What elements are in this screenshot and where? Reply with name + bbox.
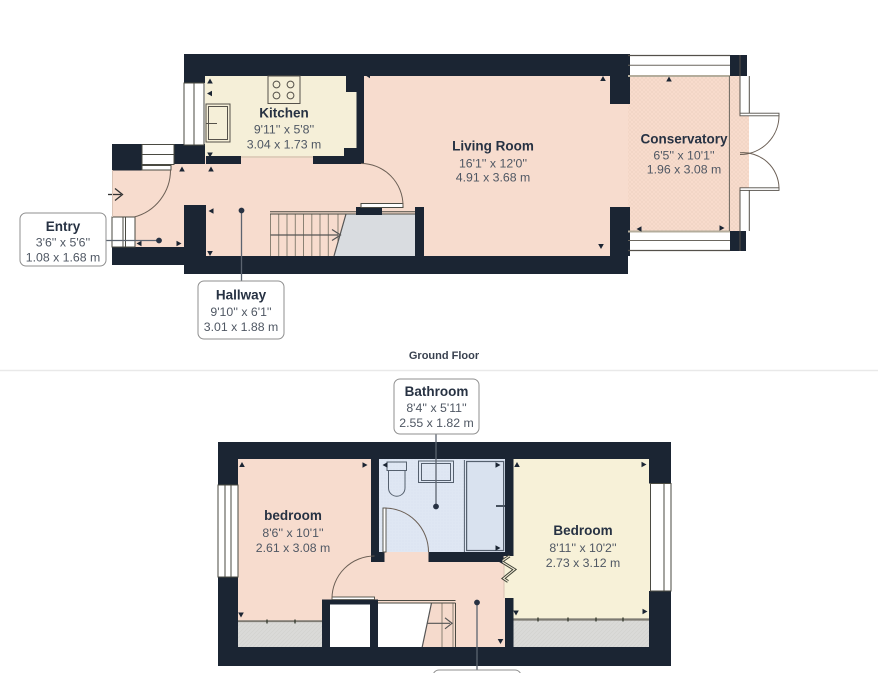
svg-text:2.55 x 1.82 m: 2.55 x 1.82 m — [399, 416, 474, 430]
svg-text:Conservatory: Conservatory — [640, 132, 728, 147]
svg-text:8'11'' x 10'2'': 8'11'' x 10'2'' — [549, 541, 616, 555]
svg-text:9'10'' x 6'1'': 9'10'' x 6'1'' — [210, 305, 271, 319]
svg-text:Entry: Entry — [46, 219, 81, 234]
svg-text:4.91 x 3.68 m: 4.91 x 3.68 m — [456, 171, 531, 185]
svg-text:Hallway: Hallway — [216, 288, 267, 303]
svg-text:6'5'' x 10'1'': 6'5'' x 10'1'' — [653, 149, 714, 163]
svg-text:3.04 x 1.73 m: 3.04 x 1.73 m — [247, 138, 322, 152]
svg-text:Bathroom: Bathroom — [405, 384, 469, 399]
svg-text:3'6'' x 5'6'': 3'6'' x 5'6'' — [36, 236, 90, 250]
svg-text:2.61 x 3.08 m: 2.61 x 3.08 m — [256, 541, 331, 555]
svg-text:Ground Floor: Ground Floor — [409, 350, 480, 362]
svg-text:16'1'' x 12'0'': 16'1'' x 12'0'' — [459, 157, 527, 171]
svg-text:3.01 x 1.88 m: 3.01 x 1.88 m — [204, 320, 279, 334]
svg-text:8'4'' x 5'11'': 8'4'' x 5'11'' — [406, 401, 466, 415]
svg-text:8'6'' x 10'1'': 8'6'' x 10'1'' — [262, 526, 323, 540]
svg-text:Kitchen: Kitchen — [259, 106, 309, 121]
svg-text:9'11'' x 5'8'': 9'11'' x 5'8'' — [254, 123, 314, 137]
svg-text:bedroom: bedroom — [264, 508, 322, 523]
svg-text:1.08 x 1.68 m: 1.08 x 1.68 m — [26, 251, 101, 265]
svg-text:2.73 x 3.12 m: 2.73 x 3.12 m — [546, 556, 621, 570]
svg-text:Living Room: Living Room — [452, 139, 534, 154]
svg-text:Bedroom: Bedroom — [553, 523, 612, 538]
svg-text:1.96 x 3.08 m: 1.96 x 3.08 m — [647, 163, 722, 177]
